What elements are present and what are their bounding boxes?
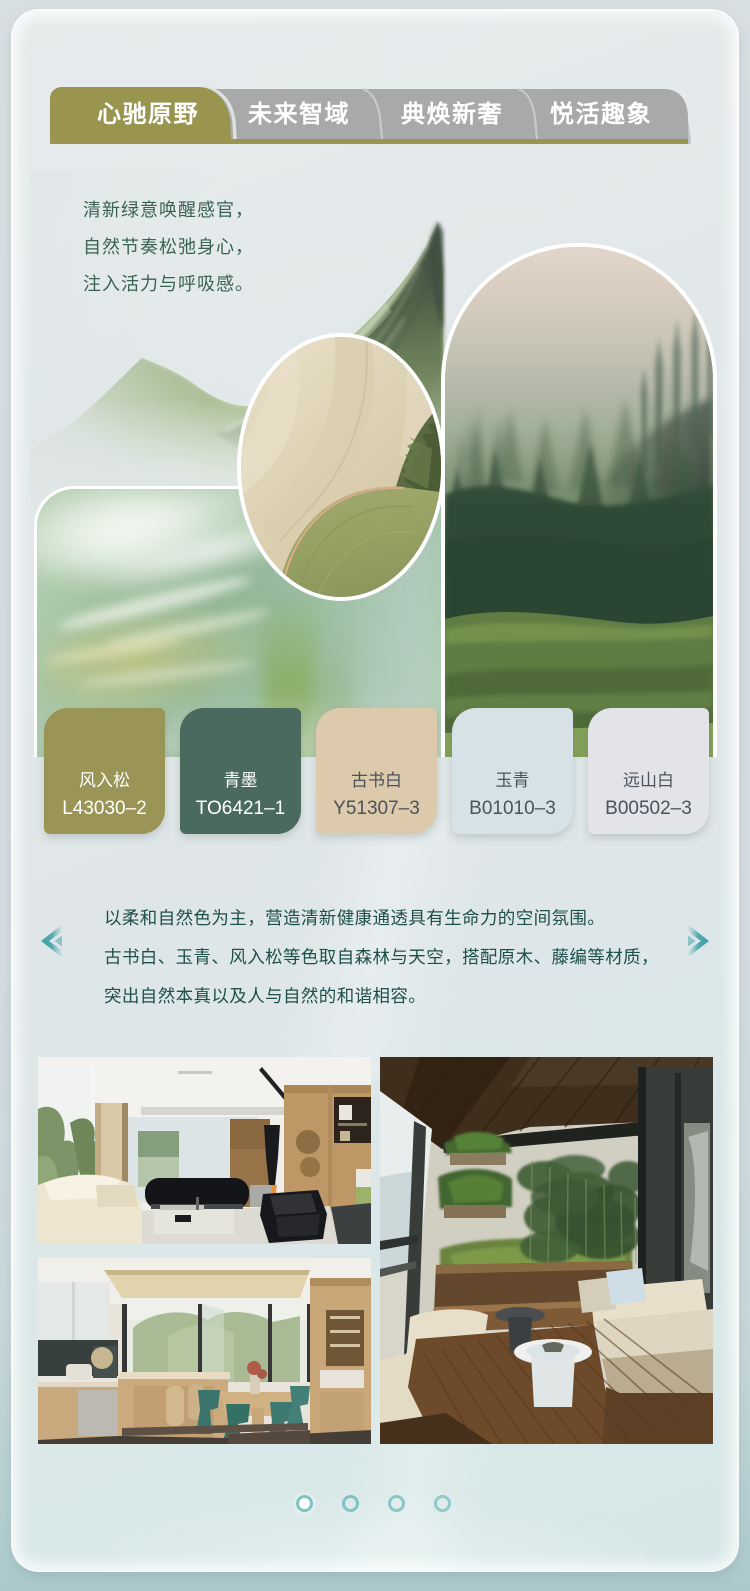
svg-text:心驰原野: 心驰原野 — [97, 101, 199, 128]
svg-text:悦活趣象: 悦活趣象 — [550, 100, 652, 128]
svg-text:典焕新奢: 典焕新奢 — [401, 100, 503, 128]
svg-text:未来智域: 未来智域 — [248, 100, 350, 128]
